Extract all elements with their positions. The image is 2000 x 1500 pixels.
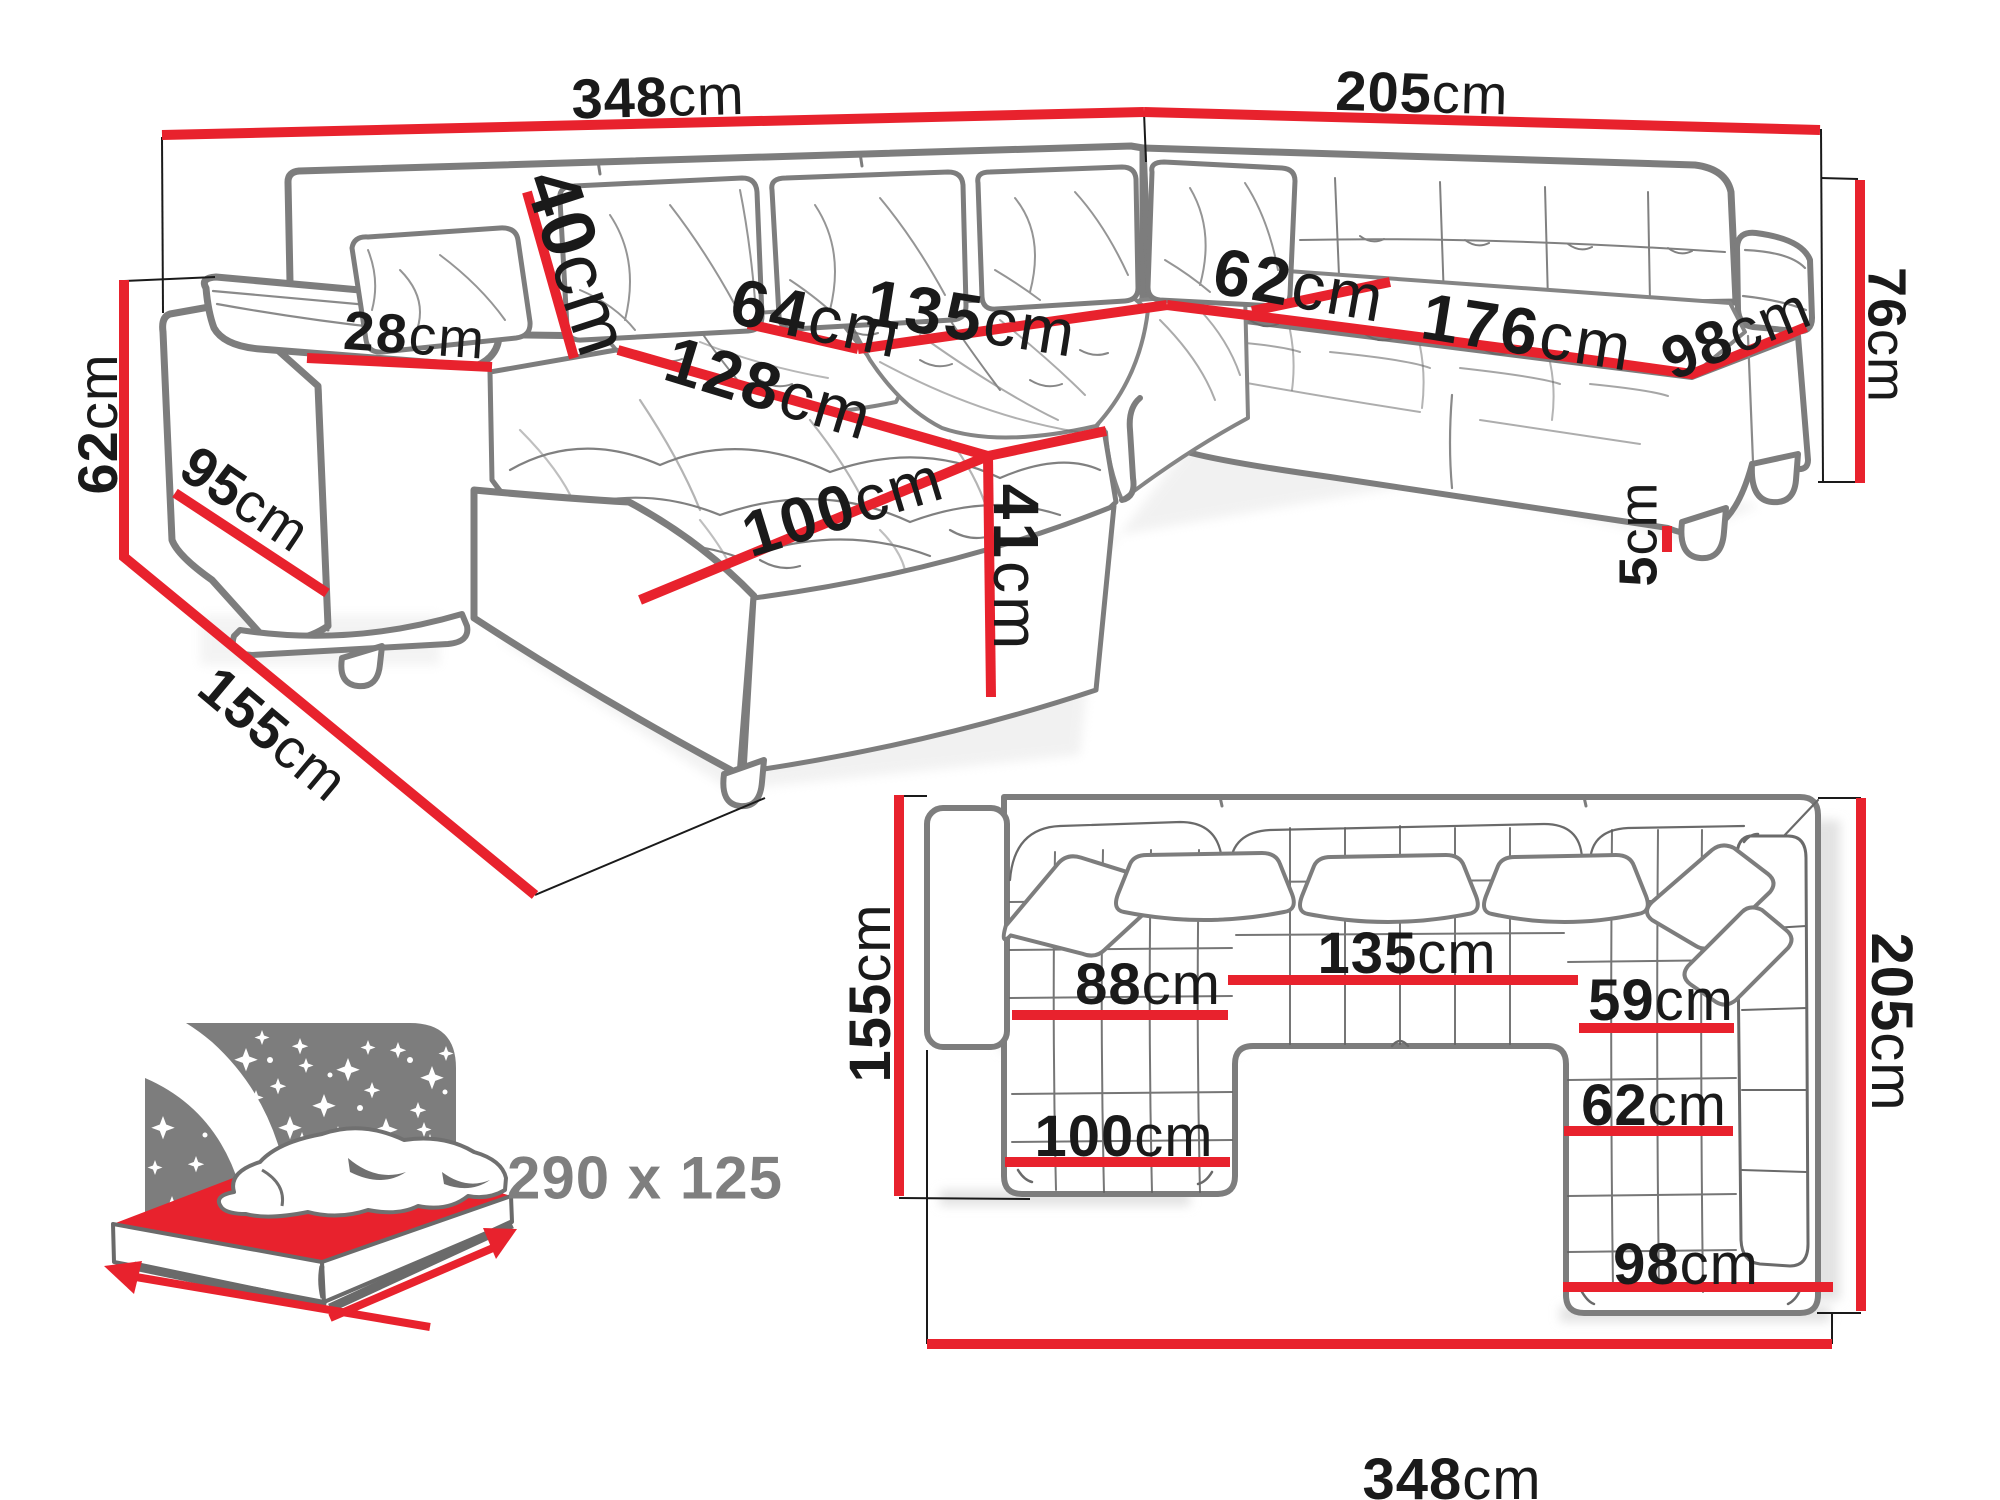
svg-text:348cm: 348cm — [571, 63, 746, 131]
svg-text:98cm: 98cm — [1613, 1232, 1759, 1297]
svg-text:41cm: 41cm — [980, 484, 1052, 653]
svg-text:59cm: 59cm — [1588, 968, 1734, 1033]
svg-text:135cm: 135cm — [1317, 921, 1496, 986]
svg-text:28cm: 28cm — [342, 299, 488, 371]
svg-text:76cm: 76cm — [1857, 267, 1917, 403]
svg-text:62cm: 62cm — [1581, 1073, 1727, 1138]
svg-text:155cm: 155cm — [838, 903, 903, 1082]
svg-text:100cm: 100cm — [1034, 1104, 1213, 1169]
svg-text:5cm: 5cm — [1608, 481, 1668, 586]
svg-text:290 x 125: 290 x 125 — [507, 1145, 783, 1212]
svg-text:88cm: 88cm — [1075, 952, 1221, 1017]
svg-text:205cm: 205cm — [1859, 932, 1924, 1111]
svg-text:348cm: 348cm — [1362, 1447, 1541, 1500]
svg-text:205cm: 205cm — [1335, 59, 1510, 127]
svg-text:62cm: 62cm — [66, 354, 129, 495]
